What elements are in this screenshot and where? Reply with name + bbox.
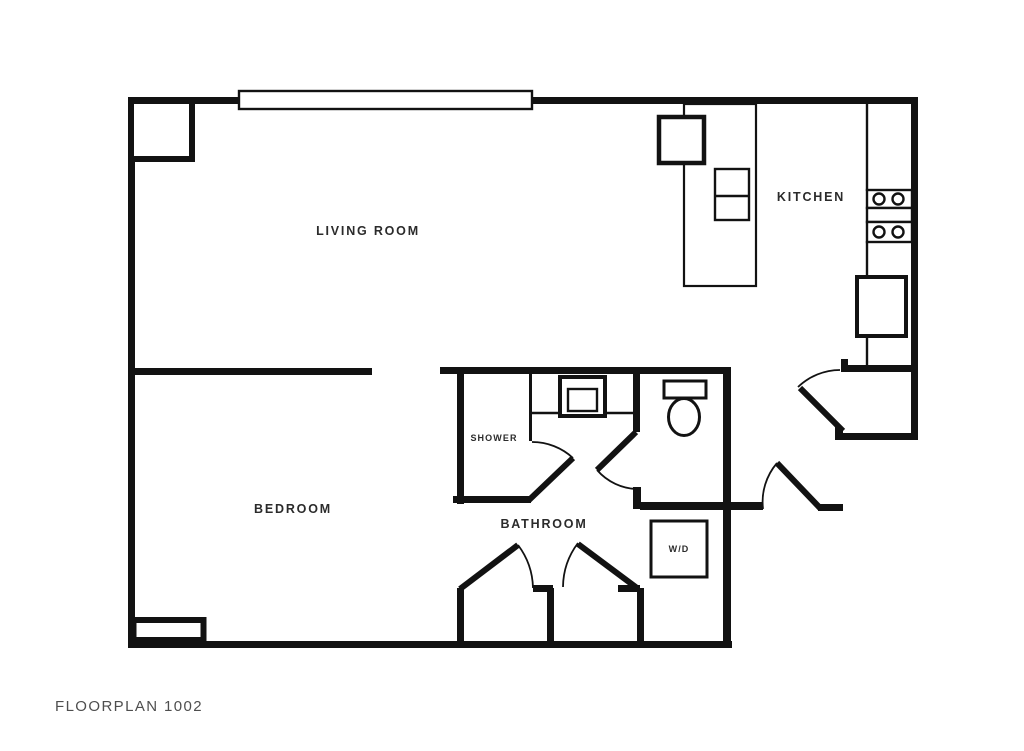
column-top-left [131, 101, 192, 159]
wall-closet-jamb-left [533, 585, 553, 592]
refrigerator [857, 277, 906, 336]
burner-icon [893, 227, 904, 238]
wall-kitchen-bottom [848, 365, 918, 372]
wall-closet-divider-2 [547, 588, 554, 641]
toilet-door-swing [597, 470, 638, 489]
window-top [239, 91, 532, 109]
wall-bathroom-top [440, 367, 731, 374]
toilet-bowl [669, 399, 700, 436]
wall-closet-divider-3 [637, 588, 644, 641]
label-shower: SHOWER [470, 433, 517, 443]
label-living-room: LIVING ROOM [316, 224, 420, 238]
closet-door-left-leaf [460, 545, 518, 589]
closet-door-right-leaf [578, 544, 637, 588]
wall-entry-nook-bottom [835, 433, 918, 440]
sink-basin [568, 389, 597, 411]
entry-door-leaf [800, 388, 843, 431]
wall-toilet-left-lower [633, 487, 641, 509]
shower-door-swing [532, 442, 573, 458]
burner-icon [874, 194, 885, 205]
floorplan-drawing: LIVING ROOM KITCHEN BEDROOM BATHROOM SHO… [0, 0, 1024, 751]
wall-right [911, 97, 918, 440]
floorplan-title: FLOORPLAN 1002 [55, 698, 203, 715]
toilet-door-leaf [597, 432, 636, 470]
fixtures [131, 91, 912, 640]
floorplan-page: LIVING ROOM KITCHEN BEDROOM BATHROOM SHO… [0, 0, 1024, 751]
burner-icon [874, 227, 885, 238]
label-washer-dryer: W/D [669, 544, 690, 554]
shower-door-leaf [528, 458, 573, 501]
cooktop-middle [867, 208, 912, 222]
wall-wd-top [640, 502, 763, 510]
wall-bathroom-left [457, 374, 464, 504]
wall-living-bedroom-divider [128, 368, 372, 375]
entry-door-swing [798, 370, 840, 387]
wall-kitchen-bottom-jamb [841, 359, 848, 372]
burner-icon [893, 194, 904, 205]
closet-door-left-swing [518, 545, 533, 588]
label-kitchen: KITCHEN [777, 190, 845, 204]
label-bedroom: BEDROOM [254, 502, 332, 516]
island-appliance [715, 169, 749, 220]
wall-hall-door-jamb [818, 504, 843, 511]
closet-door-right-swing [563, 543, 578, 587]
wall-toilet-left-upper [633, 374, 640, 432]
wall-bottom [128, 641, 732, 648]
bedroom-closet-box [134, 620, 204, 640]
wall-closet-divider-1 [457, 588, 464, 641]
hallway-door-leaf [777, 463, 820, 508]
island-sink [659, 117, 704, 163]
toilet-tank [664, 381, 706, 398]
label-bathroom: BATHROOM [500, 517, 587, 531]
walls [128, 97, 918, 648]
wall-shower-bottom [453, 496, 531, 503]
hallway-door-swing [763, 463, 777, 509]
